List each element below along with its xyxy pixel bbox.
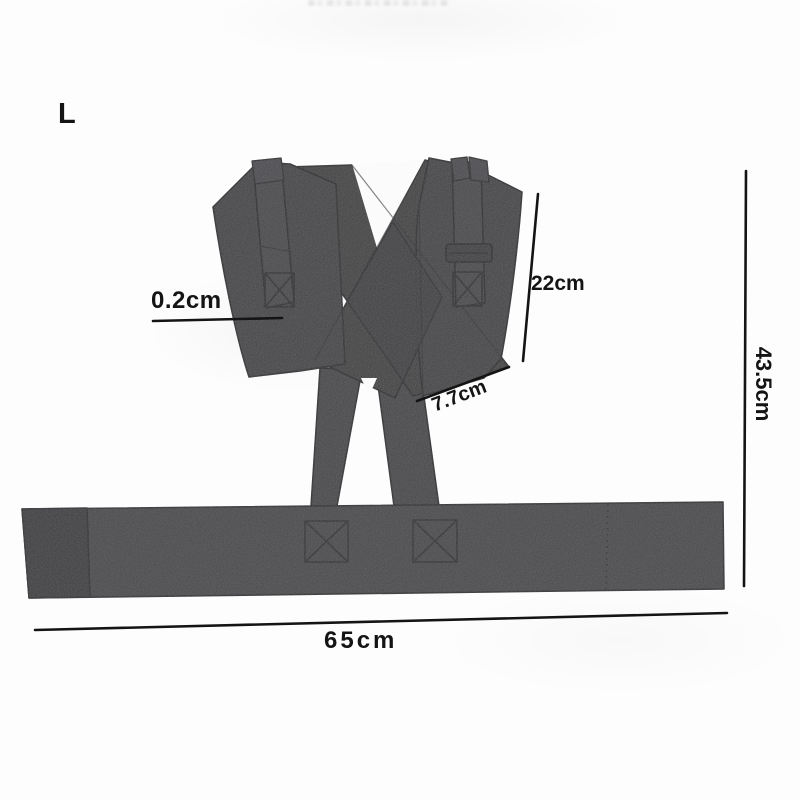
waist-belt xyxy=(22,502,724,598)
adjuster-strap-right xyxy=(452,160,485,307)
product-dimension-diagram: L 0.2cm 22cm 7.7cm 43.5cm 65cm xyxy=(0,0,800,800)
strap-thickness-label: 0.2cm xyxy=(151,287,222,315)
belt-velcro-end xyxy=(22,508,90,598)
harness-illustration xyxy=(0,0,800,800)
adjuster-strap-right-tab2 xyxy=(469,157,489,182)
size-label: L xyxy=(58,98,76,131)
dim-line-total-height xyxy=(744,171,746,586)
total-height-label: 43.5cm xyxy=(750,338,776,430)
belt-length-label: 65cm xyxy=(324,627,397,655)
adjuster-strap-left-fold xyxy=(252,158,284,184)
back-height-label: 22cm xyxy=(531,272,585,296)
adjuster-strap-right-tab1 xyxy=(451,157,470,181)
descending-strap-left xyxy=(311,368,362,506)
